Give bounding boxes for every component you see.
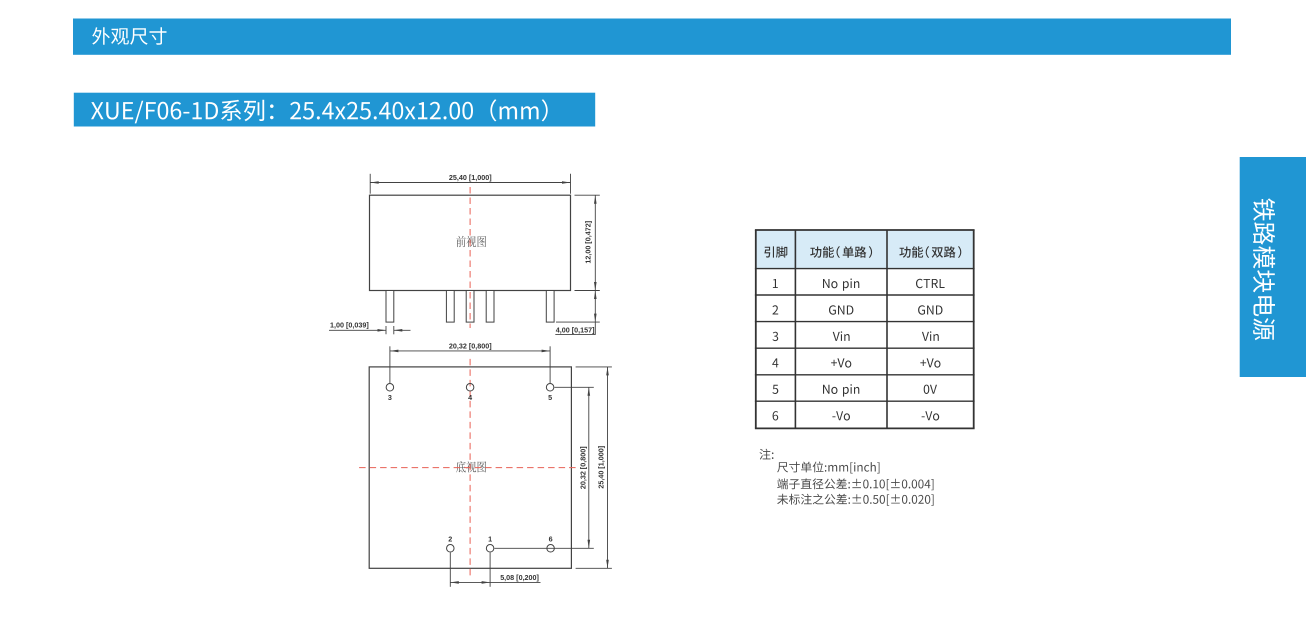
svg-text:5,08 [0,200]: 5,08 [0,200] [500, 573, 539, 582]
svg-text:12,00 [0,472]: 12,00 [0,472] [583, 221, 592, 264]
svg-text:20,32 [0,800]: 20,32 [0,800] [578, 446, 587, 489]
svg-text:4,00 [0,157]: 4,00 [0,157] [556, 326, 595, 335]
svg-text:6: 6 [549, 535, 553, 544]
svg-text:25,40 [1,000]: 25,40 [1,000] [597, 446, 606, 489]
svg-text:1: 1 [488, 535, 492, 544]
svg-text:3: 3 [388, 393, 392, 402]
svg-text:5: 5 [548, 393, 552, 402]
svg-text:20,32 [0,800]: 20,32 [0,800] [449, 342, 492, 351]
svg-text:4: 4 [468, 393, 472, 402]
svg-text:1,00 [0,039]: 1,00 [0,039] [330, 321, 369, 330]
svg-text:25,40 [1,000]: 25,40 [1,000] [449, 173, 492, 182]
svg-text:2: 2 [448, 535, 452, 544]
